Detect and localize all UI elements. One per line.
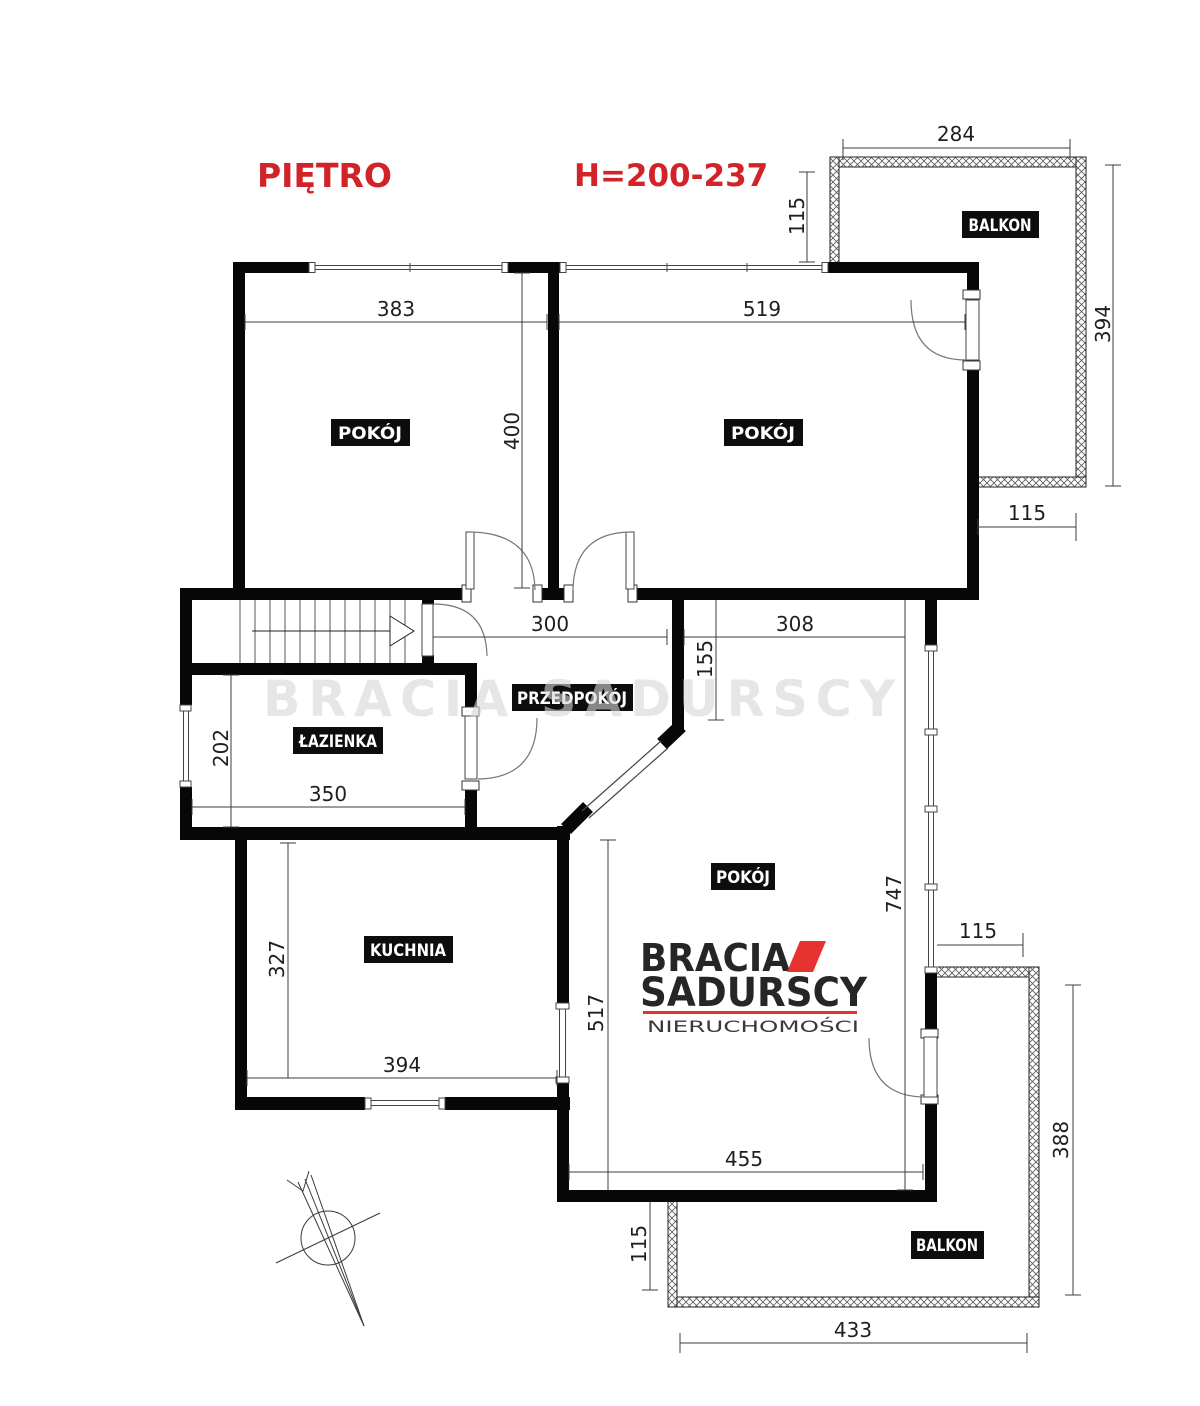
dim-room-top-left-height: 400: [500, 412, 524, 450]
dim-corridor-width: 308: [776, 612, 814, 636]
label-kitchen: KUCHNIA: [370, 941, 447, 961]
dim-room-bottom-width: 455: [725, 1147, 763, 1171]
door-leaf-balcony-bottom: [924, 1037, 937, 1097]
label-balcony-bottom: BALKON: [916, 1236, 978, 1256]
dim-hall-width: 300: [531, 612, 569, 636]
wall-kitchen-left: [235, 840, 247, 1110]
logo-line3: NIERUCHOMOŚCI: [647, 1017, 859, 1036]
dim-bathroom-height: 202: [209, 729, 233, 767]
dim-bathroom-width: 350: [309, 782, 347, 806]
door-leaf-room2: [626, 532, 634, 589]
dim-kitchen-height: 327: [265, 940, 289, 978]
door-leaf-room1: [466, 532, 474, 589]
dim-room-bottom-east-height: 747: [882, 875, 906, 913]
dim-balcony-bottom-left-depth: 115: [627, 1225, 651, 1263]
label-room-top-right: POKÓJ: [731, 422, 795, 444]
stairs: [240, 600, 414, 663]
logo-mark-icon: [787, 941, 826, 972]
dim-balcony-bottom-width: 433: [834, 1318, 872, 1342]
floorplan-drawing: 284 115 394 383 519 400 115 300 308 155 …: [0, 0, 1200, 1406]
brand-logo: BRACIA SADURSCY NIERUCHOMOŚCI: [640, 936, 868, 1036]
logo-line2: SADURSCY: [640, 970, 868, 1016]
dim-room-top-left-width: 383: [377, 297, 415, 321]
dim-balcony-top-left-depth: 115: [785, 197, 809, 235]
dim-balcony-top-height: 394: [1091, 305, 1115, 343]
logo-underline: [643, 1011, 857, 1014]
wall-room1-left: [233, 262, 245, 600]
door-leaf-balcony-top: [966, 300, 979, 360]
dim-balcony-top-width: 284: [937, 122, 975, 146]
diagonal-wall-stubs: [566, 726, 681, 829]
watermark-text: BRACIA SADURSCY: [263, 670, 903, 728]
dim-room-bottom-height: 517: [584, 994, 608, 1032]
wall-room3-bottom: [557, 1190, 937, 1202]
stairs-direction-arrow: [390, 616, 414, 646]
north-arrow-icon: [276, 1171, 380, 1326]
page-title: PIĘTRO: [257, 156, 392, 195]
dim-balcony-top-exit-width: 115: [1008, 501, 1046, 525]
dim-room-bottom-balcony-gap: 115: [959, 919, 997, 943]
ceiling-height-note: H=200-237: [574, 158, 768, 194]
label-bathroom: ŁAZIENKA: [298, 732, 378, 752]
dim-kitchen-width: 394: [383, 1053, 421, 1077]
door-leaf-stairs: [422, 604, 433, 656]
wall-partition-top-rooms: [548, 273, 559, 590]
label-room-bottom: POKÓJ: [716, 866, 770, 888]
dim-room-top-right-width: 519: [743, 297, 781, 321]
dim-balcony-bottom-height: 388: [1049, 1121, 1073, 1159]
wall-bath-kitchen: [180, 827, 570, 840]
label-balcony-top: BALKON: [969, 216, 1032, 236]
label-room-top-left: POKÓJ: [338, 422, 402, 444]
door-diagonal: [582, 741, 668, 818]
floorplan-page: 284 115 394 383 519 400 115 300 308 155 …: [0, 0, 1200, 1406]
